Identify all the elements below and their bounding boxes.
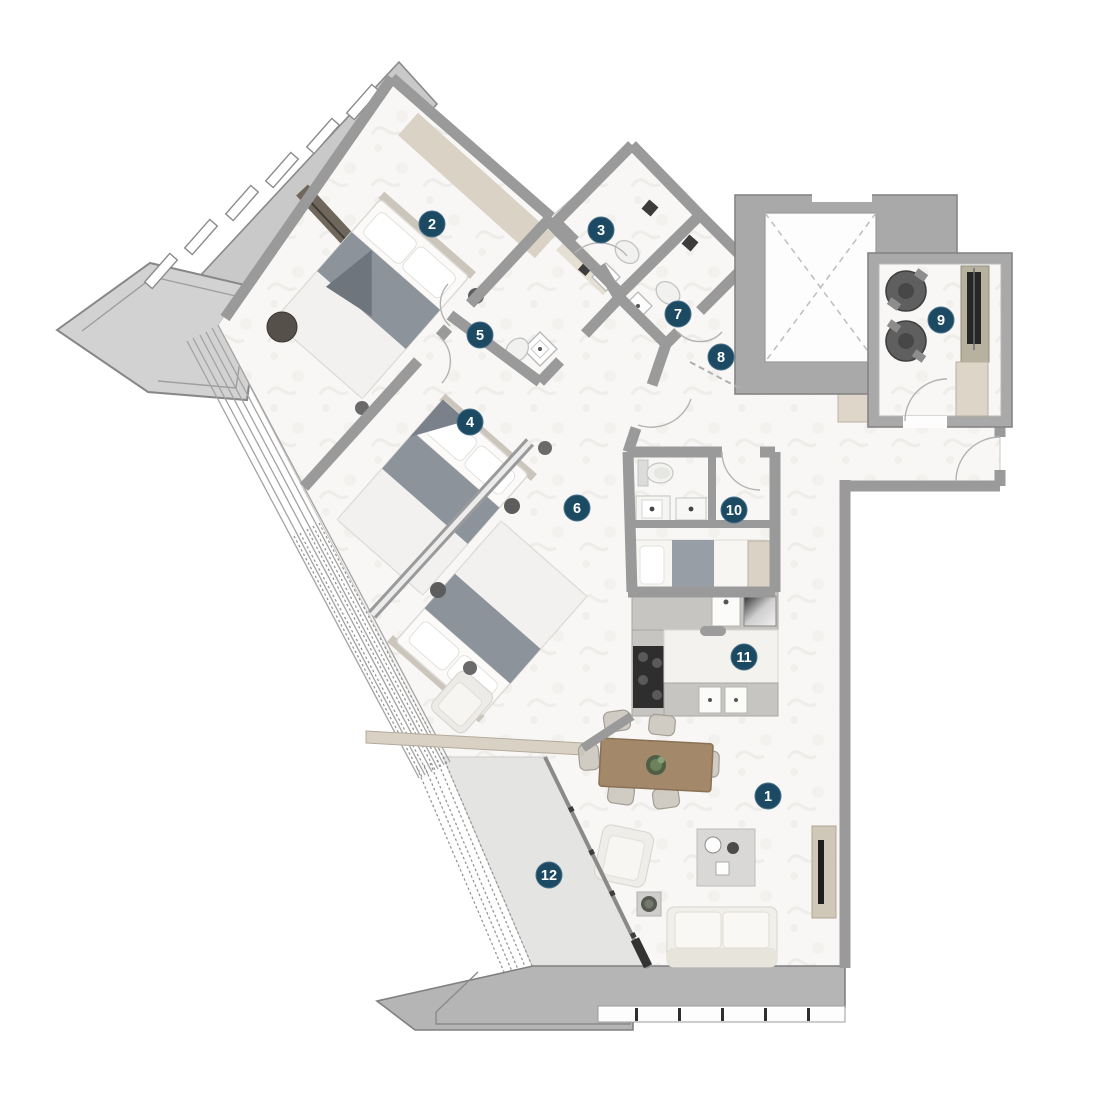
plant-bedroom6 (463, 661, 477, 675)
marker-9: 9 (928, 307, 954, 333)
marker-6: 6 (564, 495, 590, 521)
marker-1: 1 (755, 783, 781, 809)
svg-text:1: 1 (764, 789, 772, 805)
armchair (593, 823, 656, 889)
svg-text:10: 10 (726, 503, 742, 519)
sofa (667, 907, 777, 967)
marker-2: 2 (419, 211, 445, 237)
svg-text:9: 9 (937, 313, 945, 329)
laundry-cabinet (956, 362, 988, 416)
plant-bedroom4 (538, 441, 552, 455)
marker-8: 8 (708, 344, 734, 370)
side-table-bedroom4 (504, 498, 520, 514)
marker-7: 7 (665, 301, 691, 327)
svg-text:4: 4 (466, 415, 474, 431)
marker-5: 5 (467, 322, 493, 348)
svg-text:5: 5 (476, 328, 484, 344)
laundry-room (868, 253, 1012, 428)
floor-plan: 1 2 3 4 5 6 7 8 9 10 11 12 (0, 0, 1100, 1100)
marker-3: 3 (588, 217, 614, 243)
tv-unit (812, 826, 836, 918)
stool-bedroom2 (267, 312, 297, 342)
kitchen-island (664, 630, 778, 683)
wardrobe-maid-room (748, 541, 770, 589)
side-table-living (637, 892, 661, 916)
tv-screen (818, 840, 824, 904)
marker-4: 4 (457, 409, 483, 435)
svg-text:6: 6 (573, 501, 581, 517)
marker-10: 10 (721, 497, 747, 523)
coffee-table (697, 829, 755, 886)
svg-text:12: 12 (541, 868, 557, 884)
svg-text:8: 8 (717, 350, 725, 366)
marker-11: 11 (731, 644, 757, 670)
svg-text:3: 3 (597, 223, 605, 239)
svg-text:7: 7 (674, 307, 682, 323)
fridge (744, 596, 776, 626)
marker-12: 12 (536, 862, 562, 888)
svg-text:2: 2 (428, 217, 436, 233)
svg-text:11: 11 (736, 650, 751, 666)
side-table-bedroom6 (430, 582, 446, 598)
